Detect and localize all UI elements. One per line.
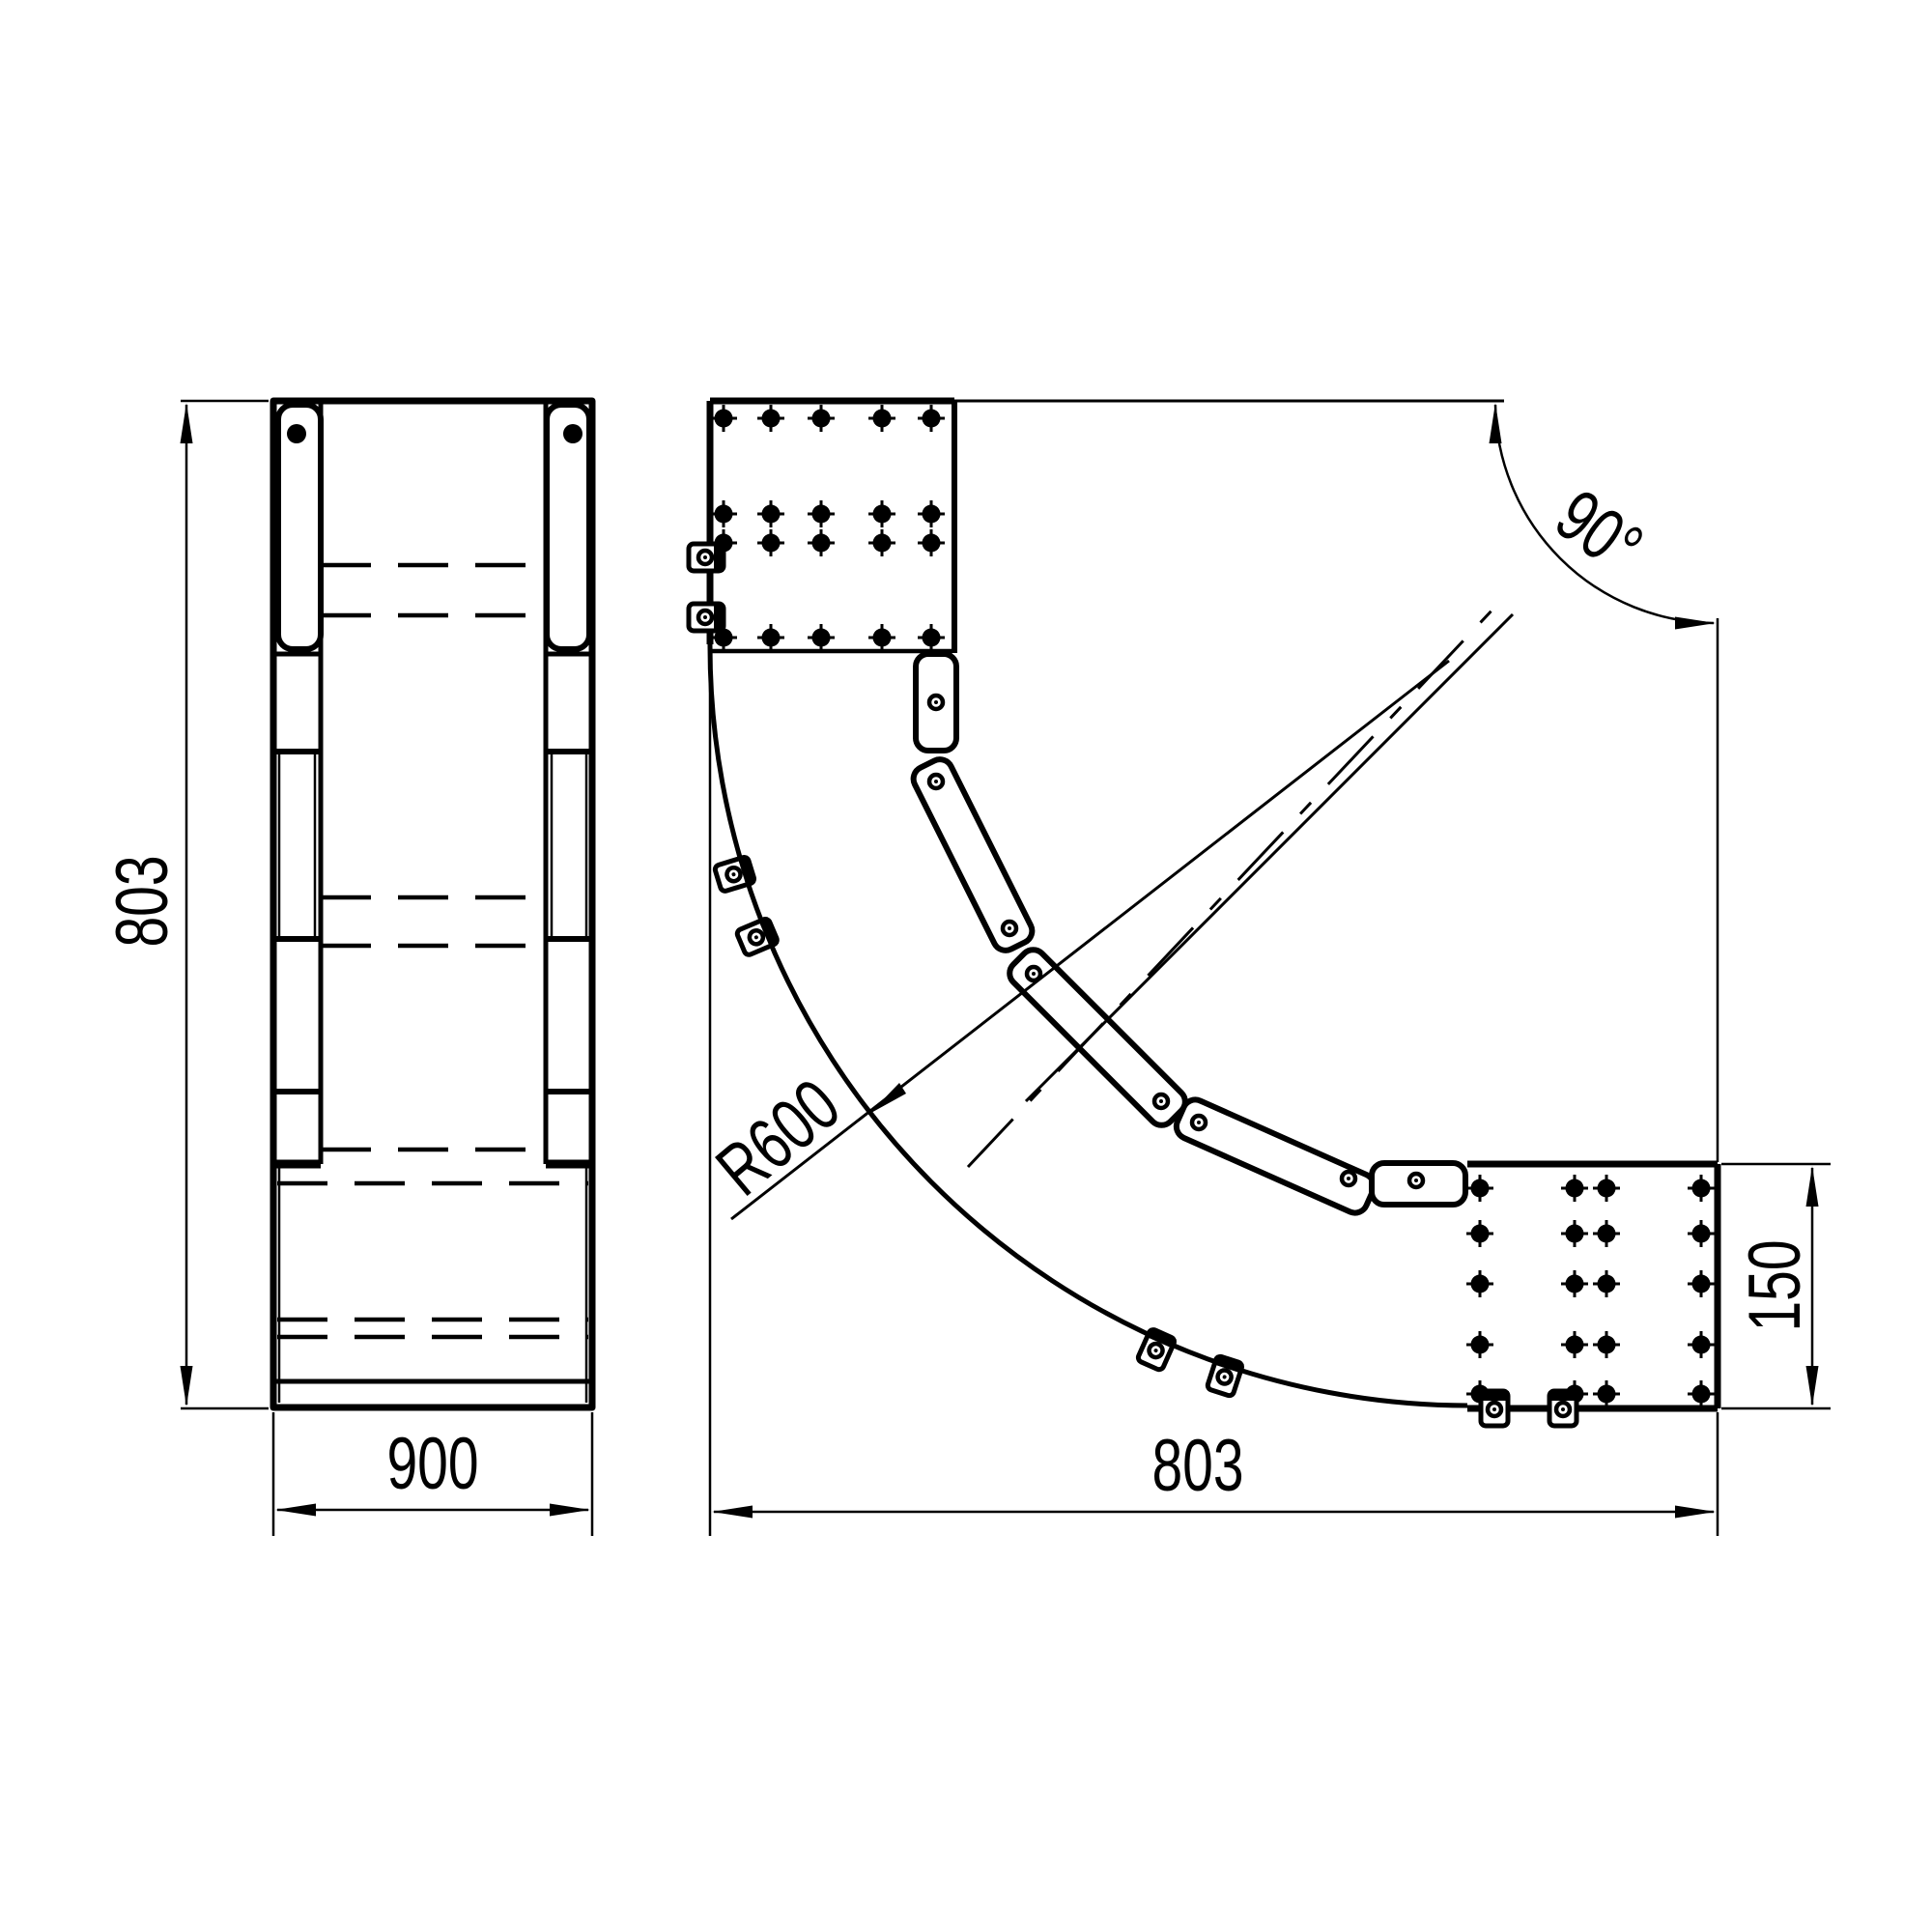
slot-hole (287, 424, 306, 443)
radius-center-line (968, 607, 1495, 1167)
side-view (273, 401, 592, 1407)
dim-height-label: 803 (101, 855, 184, 947)
dim-angle-label: 90° (1541, 474, 1657, 589)
slot-hole (563, 424, 582, 443)
side-view-dimensions: 803 900 (101, 401, 592, 1536)
dim-width-label: 900 (386, 1423, 478, 1505)
link-segment (1173, 1095, 1378, 1216)
bolt-pattern-bottom (1466, 1175, 1715, 1407)
dim-plan-width-label: 803 (1151, 1425, 1243, 1507)
dim-flange-label: 150 (1734, 1239, 1816, 1331)
dim-radius-label: R600 (701, 1064, 855, 1211)
bolt-pattern-top (710, 405, 945, 651)
technical-drawing: 803 900 (0, 0, 1932, 1932)
drawing-canvas: 803 900 (0, 0, 1932, 1932)
plan-view-dimensions: 803 150 90° R600 (701, 403, 1831, 1536)
